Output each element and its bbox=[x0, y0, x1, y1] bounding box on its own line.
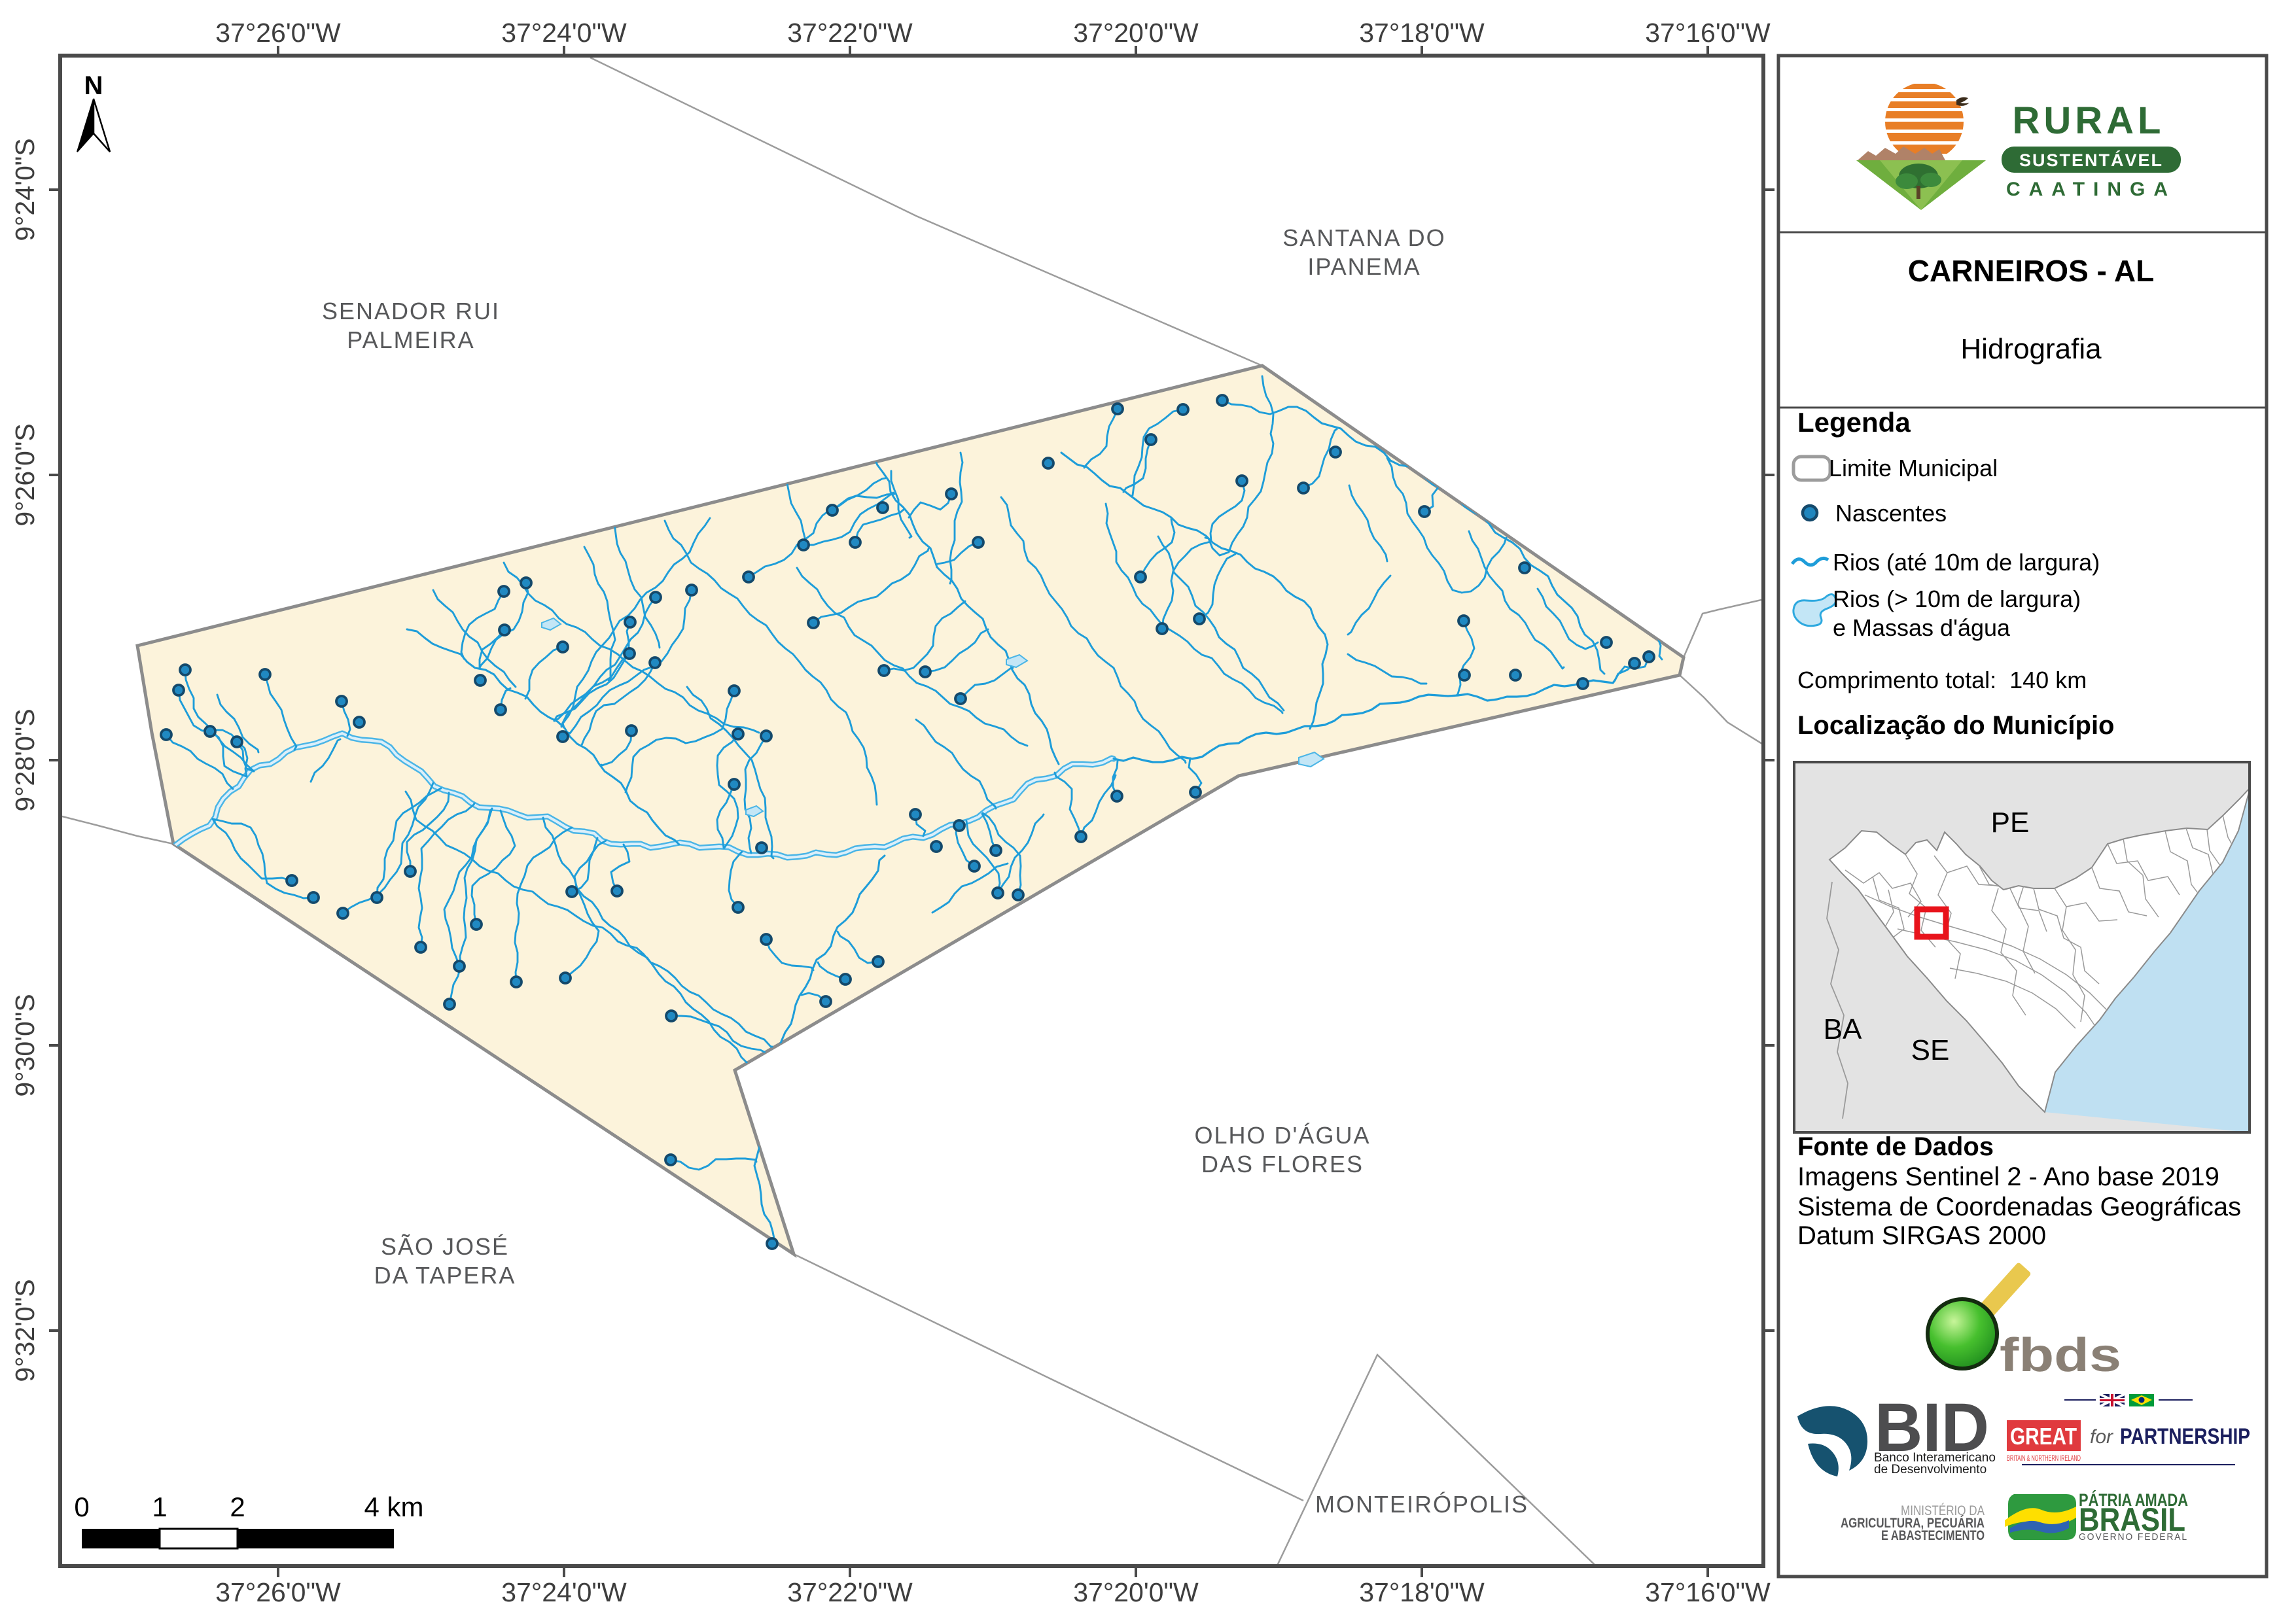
svg-text:37°18'0"W: 37°18'0"W bbox=[1359, 18, 1485, 48]
svg-text:DAS FLORES: DAS FLORES bbox=[1201, 1151, 1364, 1178]
svg-text:SUSTENTÁVEL: SUSTENTÁVEL bbox=[2019, 150, 2163, 170]
svg-text:BA: BA bbox=[1824, 1013, 1862, 1045]
svg-text:Rios (até 10m de largura): Rios (até 10m de largura) bbox=[1833, 549, 2100, 576]
svg-text:37°24'0"W: 37°24'0"W bbox=[501, 18, 627, 48]
svg-text:Nascentes: Nascentes bbox=[1835, 500, 1947, 527]
svg-text:CARNEIROS - AL: CARNEIROS - AL bbox=[1908, 254, 2155, 288]
svg-text:PARTNERSHIP: PARTNERSHIP bbox=[2120, 1424, 2250, 1449]
svg-text:RURAL: RURAL bbox=[2013, 99, 2165, 142]
svg-text:MONTEIRÓPOLIS: MONTEIRÓPOLIS bbox=[1315, 1491, 1528, 1518]
svg-text:CAATINGA: CAATINGA bbox=[2006, 179, 2176, 200]
svg-text:37°22'0"W: 37°22'0"W bbox=[787, 18, 913, 48]
svg-text:Fonte de Dados: Fonte de Dados bbox=[1797, 1132, 1994, 1161]
svg-text:37°16'0"W: 37°16'0"W bbox=[1645, 18, 1771, 48]
svg-text:Sistema de Coordenadas Geográf: Sistema de Coordenadas Geográficas bbox=[1797, 1193, 2241, 1221]
svg-text:37°22'0"W: 37°22'0"W bbox=[787, 1577, 913, 1607]
svg-text:PE: PE bbox=[1991, 807, 2030, 839]
svg-text:9°26'0"S: 9°26'0"S bbox=[10, 423, 40, 526]
svg-text:SE: SE bbox=[1911, 1034, 1950, 1066]
svg-text:Comprimento total: 140 km: Comprimento total: 140 km bbox=[1797, 667, 2087, 693]
svg-text:IPANEMA: IPANEMA bbox=[1307, 253, 1421, 280]
svg-text:GOVERNO FEDERAL: GOVERNO FEDERAL bbox=[2079, 1531, 2188, 1543]
svg-text:for: for bbox=[2090, 1426, 2113, 1448]
svg-text:37°26'0"W: 37°26'0"W bbox=[215, 1577, 341, 1607]
svg-text:GREAT: GREAT bbox=[2010, 1423, 2077, 1450]
svg-text:Imagens Sentinel 2 - Ano base: Imagens Sentinel 2 - Ano base 2019 bbox=[1797, 1162, 2219, 1191]
svg-text:BRITAIN & NORTHERN IRELAND: BRITAIN & NORTHERN IRELAND bbox=[2007, 1454, 2081, 1463]
svg-text:4 km: 4 km bbox=[364, 1492, 423, 1522]
svg-text:9°30'0"S: 9°30'0"S bbox=[10, 994, 40, 1096]
svg-text:Limite Municipal: Limite Municipal bbox=[1829, 455, 1998, 481]
svg-text:fbds: fbds bbox=[2000, 1329, 2121, 1382]
svg-text:OLHO D'ÁGUA: OLHO D'ÁGUA bbox=[1195, 1122, 1371, 1149]
svg-text:Rios (> 10m de largura): Rios (> 10m de largura) bbox=[1833, 585, 2081, 612]
svg-text:37°20'0"W: 37°20'0"W bbox=[1073, 1577, 1199, 1607]
svg-text:N: N bbox=[84, 71, 103, 100]
svg-text:37°26'0"W: 37°26'0"W bbox=[215, 18, 341, 48]
svg-text:Datum SIRGAS 2000: Datum SIRGAS 2000 bbox=[1797, 1221, 2046, 1250]
svg-text:Localização do Município: Localização do Município bbox=[1797, 711, 2115, 740]
svg-text:SÃO JOSÉ: SÃO JOSÉ bbox=[381, 1233, 509, 1260]
svg-text:37°16'0"W: 37°16'0"W bbox=[1645, 1577, 1771, 1607]
svg-text:9°32'0"S: 9°32'0"S bbox=[10, 1279, 40, 1382]
svg-text:2: 2 bbox=[230, 1492, 245, 1522]
svg-text:SANTANA DO: SANTANA DO bbox=[1282, 224, 1445, 251]
svg-text:0: 0 bbox=[74, 1492, 89, 1522]
svg-text:e Massas d'água: e Massas d'água bbox=[1833, 614, 2011, 641]
svg-text:E ABASTECIMENTO: E ABASTECIMENTO bbox=[1881, 1528, 1985, 1543]
svg-text:37°18'0"W: 37°18'0"W bbox=[1359, 1577, 1485, 1607]
svg-text:37°24'0"W: 37°24'0"W bbox=[501, 1577, 627, 1607]
svg-text:9°24'0"S: 9°24'0"S bbox=[10, 138, 40, 241]
svg-text:37°20'0"W: 37°20'0"W bbox=[1073, 18, 1199, 48]
svg-text:Hidrografia: Hidrografia bbox=[1960, 333, 2102, 365]
svg-text:PALMEIRA: PALMEIRA bbox=[347, 326, 474, 353]
svg-text:Legenda: Legenda bbox=[1797, 407, 1911, 438]
svg-text:SENADOR RUI: SENADOR RUI bbox=[322, 298, 500, 324]
svg-text:9°28'0"S: 9°28'0"S bbox=[10, 708, 40, 811]
svg-text:DA TAPERA: DA TAPERA bbox=[374, 1262, 516, 1289]
svg-text:de Desenvolvimento: de Desenvolvimento bbox=[1874, 1463, 1987, 1476]
svg-text:1: 1 bbox=[152, 1492, 167, 1522]
